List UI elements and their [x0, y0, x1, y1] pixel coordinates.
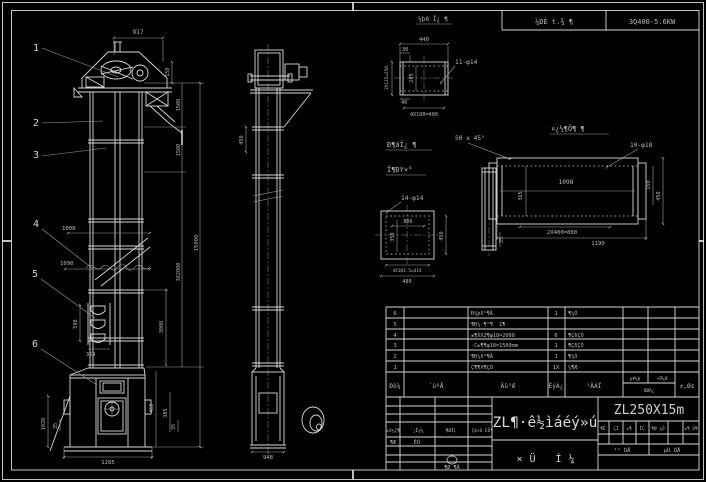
callout-4: 4: [33, 219, 39, 230]
bom-seq: 1: [393, 365, 396, 371]
dim-detailmid-left: 350: [390, 232, 396, 241]
dim-side-upper: 450: [239, 135, 245, 144]
dim-detailmid-width: 480: [402, 279, 411, 285]
callout-6: 6: [32, 339, 38, 350]
bom-header-qty: ÊýÁ¿: [549, 381, 564, 390]
bom-material: ¼¶Æ·: [568, 365, 581, 371]
dim-plate-right-b: 450: [656, 191, 662, 200]
bom-material: ¶Ç6ÇÓ: [568, 332, 584, 339]
dim-detailtop-holes: 11-φ14: [455, 59, 478, 66]
model-number: ZL250X15m: [614, 403, 685, 418]
dim-boot-left-small: 35: [53, 423, 59, 429]
detail-mid-flange: Ð¶áÎ¿ ¶ Î¶ÐÝ×° 14-φ14 806 350 450 4X103.…: [375, 140, 446, 285]
dim-lower-section: 3000: [159, 321, 165, 334]
detail-right-label: ¤¿½¶Ô¶ ¶: [551, 124, 585, 133]
detail-top-label: ¼þ6 Î¿ ¶: [418, 14, 448, 23]
sheets-total: ¹² ÕÅ: [614, 447, 631, 454]
bom-header-material: ²ÄÁÏ: [587, 381, 602, 390]
bom-qty: 6: [554, 333, 557, 339]
dim-detailright-holes: 10-φ18: [630, 142, 653, 149]
callout-1: 1: [33, 43, 39, 54]
bom-header-code: ´úºÅ: [429, 381, 444, 390]
header-strip: ¼ÐÈ t.¾ ¶ 3Q400-5.6KW: [502, 11, 699, 31]
info-cell: ±¶: [626, 426, 632, 432]
bom-material: ¶¼Ó: [568, 353, 577, 360]
dim-side-base: 948: [263, 455, 274, 461]
dim-detailmid-pitch: 4X103.5=414: [392, 268, 421, 274]
dim-runs: 3X2000: [176, 263, 182, 282]
dim-chamfer: 50 x 45°: [455, 134, 485, 142]
detail-right-plate: ¤¿½¶Ô¶ ¶ 50 x 45° 10-φ18 1098 365 2X400=…: [455, 124, 663, 247]
dim-detailmid-holes: 14-φ14: [401, 195, 424, 202]
rev-cell: ¶Æ: [390, 440, 396, 446]
bom-table: 6 Ð¼þX°¶Ä 1 ¶¼Ó 5 ¶Ð¼·¶°¶´ 1¶ 4 ±¶XX2¶φ1…: [386, 307, 699, 397]
bom-qty: 1: [554, 311, 557, 317]
bom-material: ¶Ç6ÇÓ: [568, 342, 584, 349]
front-view: 1 2 3 4 5 6 917 150 1500 1500 3X2000: [32, 29, 204, 466]
bom-name: ¶Ð¼X°¶Ä: [471, 353, 494, 360]
bom-header-weight-unit: µ¥¼þ: [630, 376, 641, 382]
dim-detailmid-right: 450: [439, 231, 445, 240]
bom-rows: 6 Ð¼þX°¶Ä 1 ¶¼Ó 5 ¶Ð¼·¶°¶´ 1¶ 4 ±¶XX2¶φ1…: [393, 310, 583, 371]
bom-seq: 4: [393, 333, 397, 339]
dim-detailtop-pitch: 4X100=400: [410, 112, 438, 118]
cad-sheet: ¼ÐÈ t.¾ ¶ 3Q400-5.6KW: [0, 0, 706, 482]
dim-plate-width: 1190: [591, 241, 604, 247]
bom-headers: Ðò¼ ´úºÅ Ãû³Æ ÊýÁ¿ ²ÄÁÏ µ¥¼þ ×Ü¼Æ ÖØÁ¿ ±…: [389, 375, 694, 394]
info-cell: ¶Ø ¼Ó: [651, 425, 665, 432]
dim-boot-left: 1020: [41, 418, 47, 431]
dim-detailtop-side: 2X125=250: [384, 66, 390, 90]
dim-boot-height: 460: [149, 403, 155, 412]
callout-5: 5: [32, 269, 38, 280]
boot-section: [50, 368, 152, 451]
bom-header-weight-total: ×Ü¼Æ: [657, 375, 668, 382]
dim-feed-a: 1008: [62, 226, 76, 232]
detail-mid-label-1: Ð¶áÎ¿ ¶: [387, 140, 417, 149]
dim-top-width: 917: [132, 29, 143, 36]
dim-boot-width: 1285: [101, 460, 114, 466]
info-cell: ±¶ Ó¶: [684, 425, 698, 432]
bom-header-seq: Ðò¼: [389, 382, 400, 390]
dim-bucket-width: 369: [86, 352, 95, 358]
dim-upper-section: 1500: [176, 99, 182, 112]
info-cell: ¶Ê: [600, 424, 606, 432]
dim-plate-side: 365: [518, 191, 524, 200]
dim-boot-right: 385: [163, 408, 169, 417]
drawing-title: ZL¶·ê½ìáéý»ú: [493, 415, 598, 431]
bom-qty: 1: [554, 343, 557, 349]
bom-seq: 3: [393, 343, 396, 349]
dim-detailtop-height: 295: [409, 73, 415, 82]
bom-name: Ç¶¶X¶ÇÓ: [471, 364, 493, 371]
dim-feed-b: 1090: [60, 261, 73, 267]
rev-cell: ÊÓ: [414, 438, 420, 446]
dim-total-height: 15000: [194, 235, 200, 252]
dim-head-height: 150: [165, 67, 171, 76]
bom-material: ¶¼Ó: [568, 310, 577, 317]
header-right-label: 3Q400-5.6KW: [629, 18, 676, 26]
ink-smudge: [447, 456, 457, 464]
header-left-label: ¼ÐÈ t.¾ ¶: [535, 17, 573, 26]
detail-top-flange: ¼þ6 Î¿ ¶ 440 30 11-φ14 295 2X125=250 40 …: [384, 14, 478, 118]
rev-header: Ç©×Ó: [472, 427, 483, 434]
side-view: 450 948: [239, 44, 313, 461]
dim-plate-pitch: 2X400=800: [547, 230, 577, 236]
revision-grid: ±ê¼Ç¶ ´¦Êý¼ ¶ØÎļ Ç©×Ó ÈÕ¶ ¶Æ ÊÓ ¶Ø ¶Ä: [386, 397, 493, 471]
title-block: ±ê¼Ç¶ ´¦Êý¼ ¶ØÎļ Ç©×Ó ÈÕ¶ ¶Æ ÊÓ ¶Ø ¶Ä ZL…: [386, 397, 699, 471]
bom-qty: 1X: [553, 365, 560, 371]
bom-seq: 5: [393, 322, 396, 328]
detail-mid-label-2: Î¶ÐÝ×°: [387, 165, 412, 174]
dim-detailtop-offset: 30: [402, 47, 408, 53]
dim-mid-section: 1500: [176, 144, 182, 157]
dim-detailtop-foot: 40: [401, 100, 407, 106]
callout-2: 2: [33, 118, 39, 129]
bom-name: ¶Ð¼·¶°¶´ 1¶: [471, 322, 505, 328]
bucket-detail: [88, 303, 110, 345]
info-grid: ZL250X15m ¶Ê ÇÏ ±¶ ÏÇ ¶Ø ¼Ó ±¶ Ó¶ ¹² ÕÅ …: [598, 403, 699, 455]
cad-drawing: ¼ÐÈ t.¾ ¶ 3Q400-5.6KW: [0, 0, 706, 482]
drawing-subtitle: ×Ü Í¼: [516, 452, 581, 465]
dim-bucket-pitch: 590: [73, 319, 79, 328]
bom-header-name: Ãû³Æ: [501, 381, 516, 390]
bom-header-weight-label: ÖØÁ¿: [644, 387, 655, 394]
dim-detailtop-width: 440: [419, 37, 429, 43]
dim-inner-length: 1098: [559, 179, 574, 186]
bom-seq: 2: [393, 354, 396, 360]
sheet-number: µÚ ÕÅ: [664, 447, 681, 454]
bom-seq: 6: [393, 311, 396, 317]
rev-header: ¶ØÎļ: [446, 427, 457, 434]
callout-3: 3: [33, 150, 39, 161]
dim-plate-right-a: 150: [646, 180, 652, 189]
bom-name: ±¶XX2¶φ18=2000: [471, 333, 515, 339]
info-cell: ÇÏ: [613, 425, 619, 432]
dim-detailmid-top: 806: [403, 219, 412, 225]
dim-boot-right-small: 35: [171, 424, 177, 430]
info-cell: ÏÇ: [639, 425, 645, 432]
bom-name: ·C±¶¶φ18=1500mm: [471, 343, 518, 349]
rev-header: ±ê¼Ç¶: [386, 427, 400, 434]
bom-name: Ð¼þX°¶Ä: [471, 310, 494, 317]
rev-bottom-cell: ¶Ø ¶Ä: [444, 464, 460, 471]
scan-artifact-blob: [302, 407, 324, 433]
bom-qty: 1: [554, 354, 557, 360]
bom-header-remark: ±,Ø¢: [680, 382, 695, 390]
rev-header: ´¦Êý¼: [410, 426, 424, 434]
